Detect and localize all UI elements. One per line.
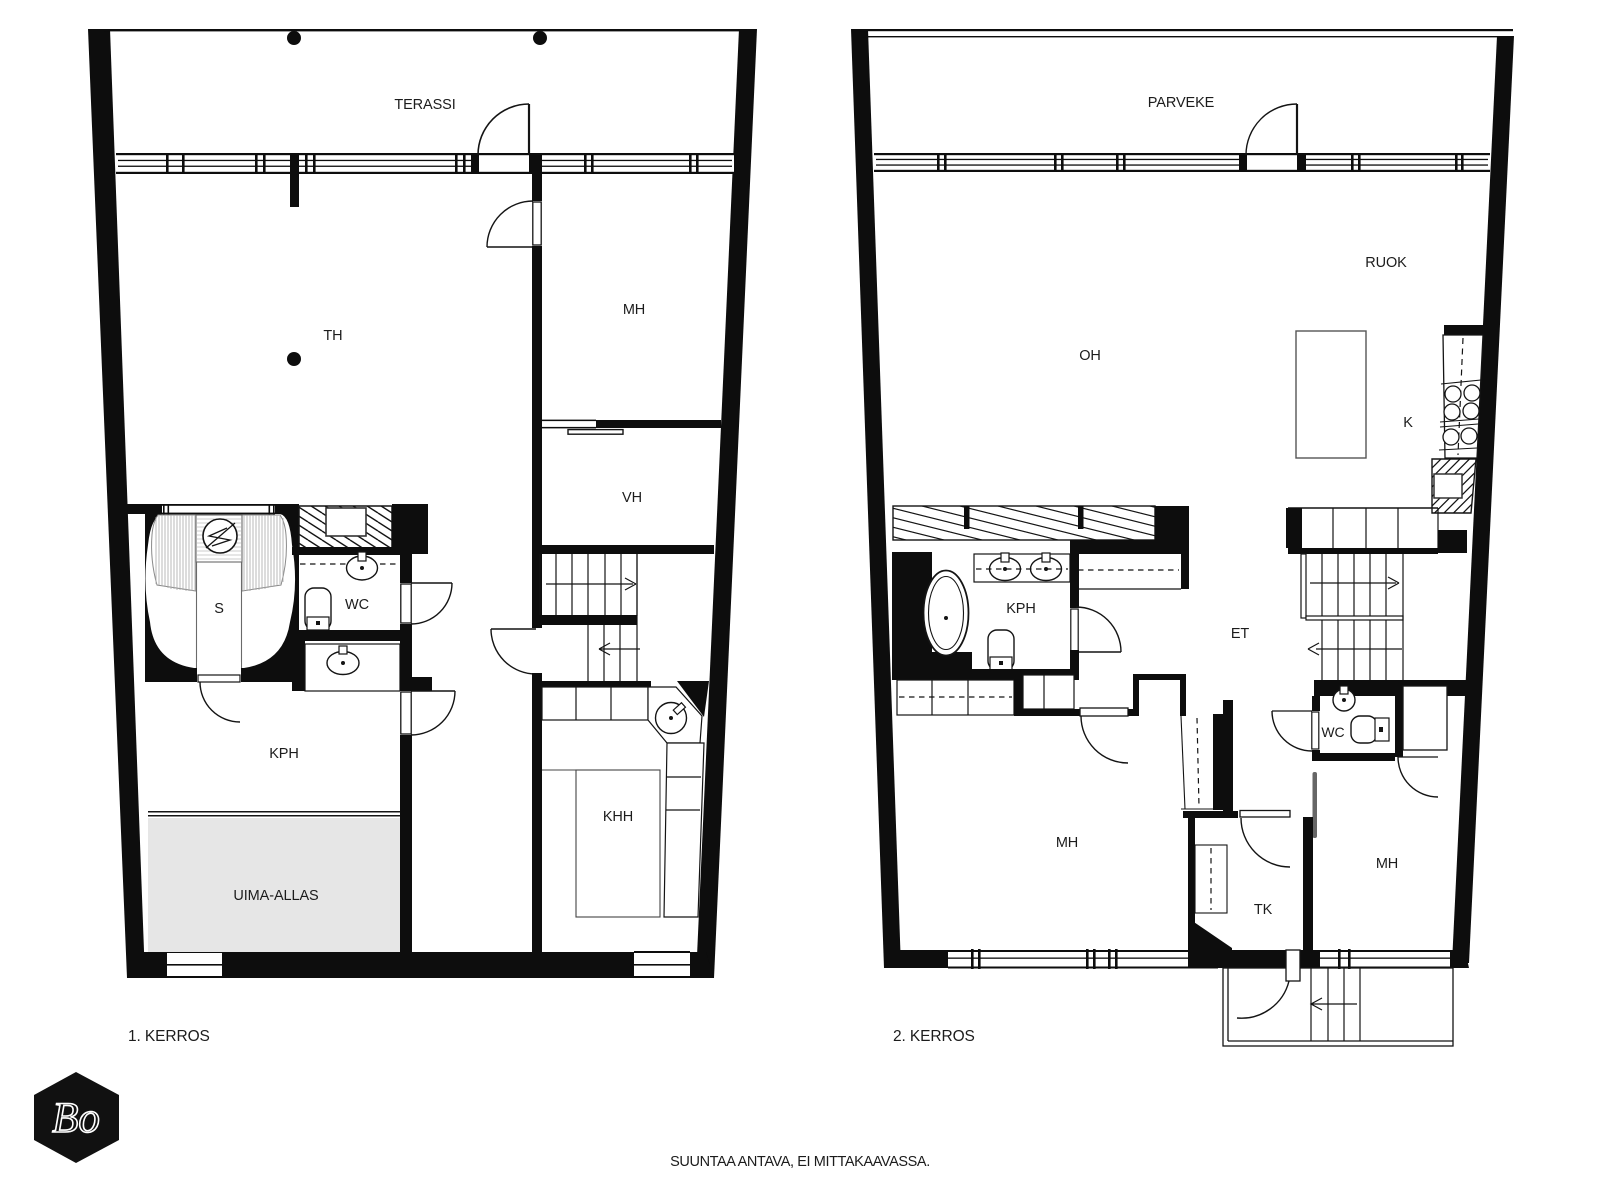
svg-text:SUUNTAA ANTAVA, EI MITTAKAAVAS: SUUNTAA ANTAVA, EI MITTAKAAVASSA.: [670, 1154, 930, 1170]
svg-text:KHH: KHH: [603, 809, 633, 825]
svg-text:TH: TH: [323, 328, 342, 344]
svg-text:WC: WC: [345, 597, 369, 613]
svg-text:KPH: KPH: [1006, 601, 1036, 617]
svg-text:ET: ET: [1231, 626, 1250, 642]
svg-text:VH: VH: [622, 490, 642, 506]
svg-text:MH: MH: [1056, 835, 1078, 851]
svg-text:OH: OH: [1079, 348, 1101, 364]
svg-text:MH: MH: [1376, 856, 1398, 872]
svg-text:PARVEKE: PARVEKE: [1148, 95, 1215, 111]
svg-text:MH: MH: [623, 302, 645, 318]
svg-text:2. KERROS: 2. KERROS: [893, 1028, 975, 1045]
svg-text:UIMA-ALLAS: UIMA-ALLAS: [233, 888, 318, 904]
svg-text:TERASSI: TERASSI: [394, 97, 455, 113]
svg-text:TK: TK: [1254, 902, 1273, 918]
svg-text:KPH: KPH: [269, 746, 299, 762]
svg-text:K: K: [1403, 415, 1413, 431]
svg-text:Bo: Bo: [52, 1095, 100, 1142]
svg-text:RUOK: RUOK: [1365, 255, 1407, 271]
svg-text:1. KERROS: 1. KERROS: [128, 1028, 210, 1045]
svg-text:S: S: [214, 601, 224, 617]
svg-text:WC: WC: [1321, 724, 1344, 740]
